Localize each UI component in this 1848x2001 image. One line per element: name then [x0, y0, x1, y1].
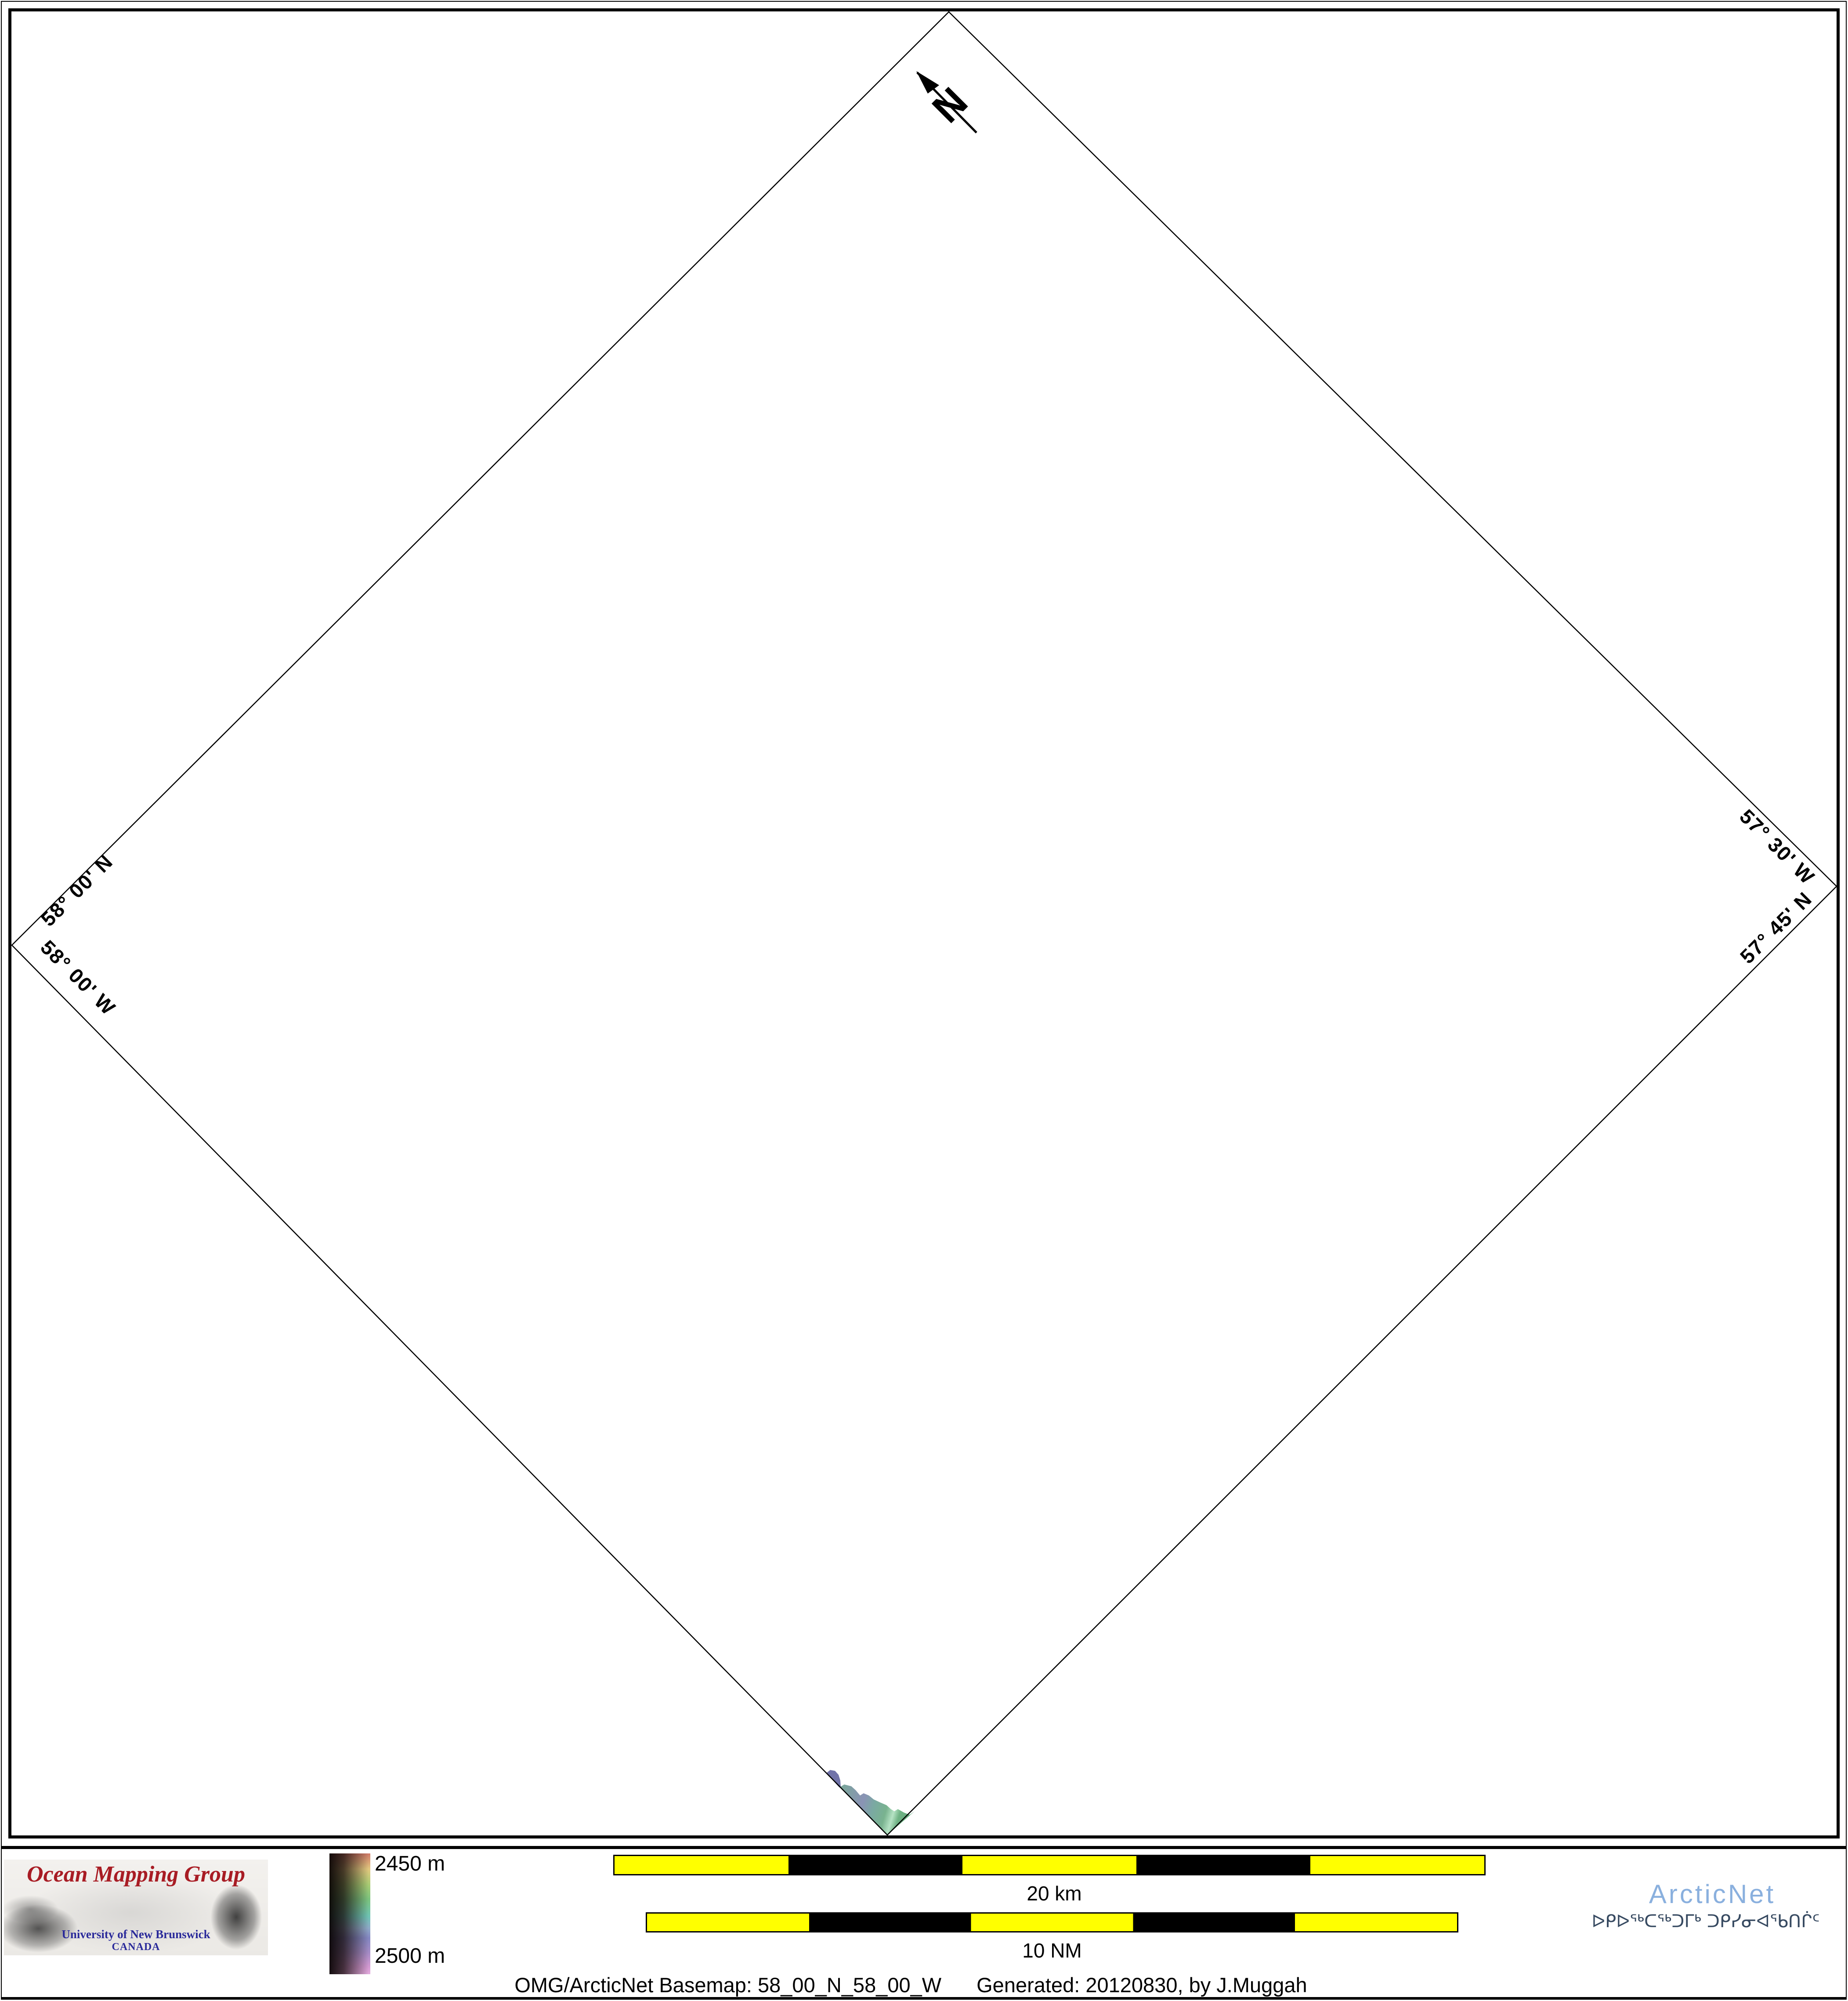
depth-colorbar — [329, 1853, 370, 1974]
bathymetry-swath — [840, 1784, 915, 1835]
caption-row: OMG/ArcticNet Basemap: 58_00_N_58_00_W G… — [0, 1973, 1848, 1997]
omg-logo-title: Ocean Mapping Group — [4, 1861, 268, 1887]
omg-logo-country: CANADA — [4, 1941, 268, 1953]
omg-logo-subtitle: University of New Brunswick — [4, 1928, 268, 1941]
scalebar-km-label: 20 km — [966, 1882, 1142, 1905]
map-canvas — [0, 0, 1848, 2001]
scalebar-km — [613, 1855, 1486, 1875]
scalebar-nm-label: 10 NM — [964, 1939, 1140, 1962]
arcticnet-inuktitut-text: ᐅᑭᐅᖅᑕᖅᑐᒥᒃ ᑐᑭᓯᓂᐊᖃᑎᒌᑦ — [1561, 1911, 1848, 1932]
caption-generated-by: Generated: 20120830, by J.Muggah — [976, 1973, 1307, 1997]
caption-basemap-id: OMG/ArcticNet Basemap: 58_00_N_58_00_W — [514, 1973, 941, 1997]
basemap-page: N 58° 00' N 58° 00' W 57° 30' W 57° 45' … — [0, 0, 1848, 2001]
colorbar-top-label: 2450 m — [375, 1852, 445, 1876]
scalebar-nm-segments — [647, 1914, 1457, 1931]
arcticnet-logo: ArcticNet — [1602, 1879, 1822, 1909]
scalebar-nm — [646, 1912, 1458, 1932]
colorbar-bottom-label: 2500 m — [375, 1944, 445, 1968]
scalebar-km-segments — [615, 1856, 1484, 1874]
omg-logo: Ocean Mapping Group University of New Br… — [4, 1860, 268, 1955]
survey-area-outline — [12, 12, 1837, 1835]
